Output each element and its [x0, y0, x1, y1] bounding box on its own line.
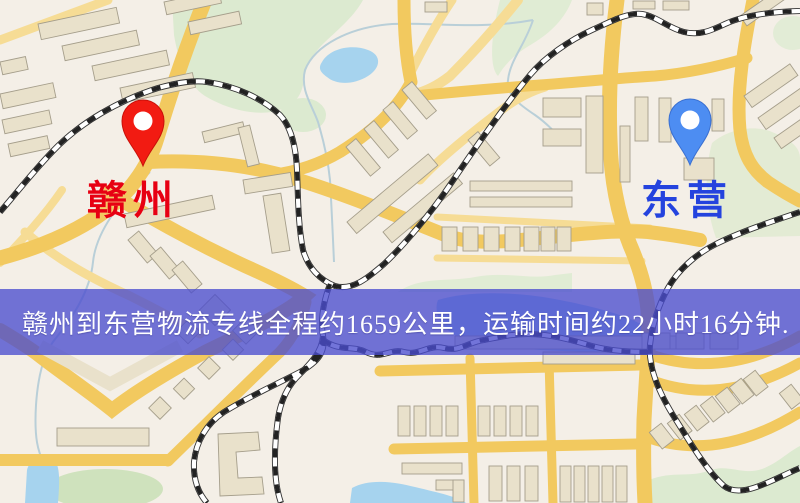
blue-map-pin-icon: [666, 97, 714, 167]
logistics-route-map: 赣州 东营 赣州到东营物流专线全程约1659公里，运输时间约22小时16分钟.: [0, 0, 800, 503]
destination-pin[interactable]: [666, 97, 714, 167]
destination-city-label: 东营: [641, 180, 733, 222]
route-info-text: 赣州到东营物流专线全程约1659公里，运输时间约22小时16分钟.: [22, 304, 790, 341]
origin-city-label: 赣州: [87, 180, 179, 222]
red-map-pin-icon: [119, 98, 167, 168]
origin-pin[interactable]: [119, 98, 167, 168]
map-canvas[interactable]: [0, 0, 800, 503]
route-info-banner: 赣州到东营物流专线全程约1659公里，运输时间约22小时16分钟.: [0, 289, 800, 355]
